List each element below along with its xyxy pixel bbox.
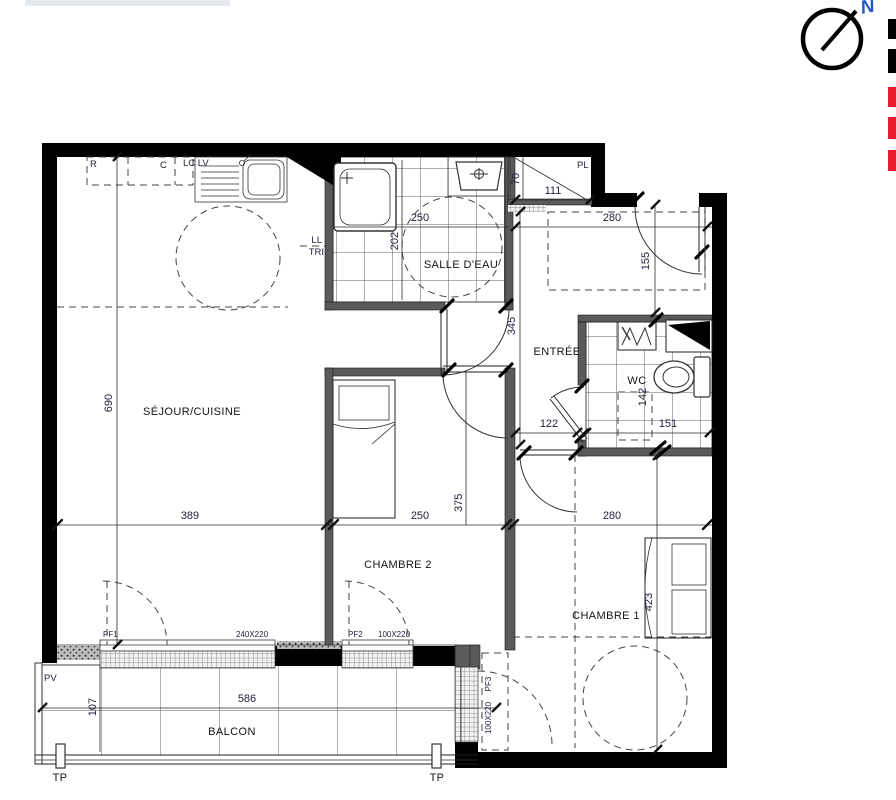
dim-wc-d: 142 bbox=[637, 388, 649, 406]
sejour-label: SÉJOUR/CUISINE bbox=[143, 405, 241, 418]
pl-label: PL bbox=[577, 160, 589, 171]
chambre2-door bbox=[443, 366, 508, 438]
shower-tray bbox=[334, 163, 396, 231]
legend-squares bbox=[888, 19, 896, 171]
balcony-west-rail bbox=[35, 663, 42, 764]
legend-square-3 bbox=[888, 87, 896, 107]
compass: N bbox=[803, 0, 878, 68]
tp-post-right bbox=[432, 744, 441, 768]
wc-label: WC bbox=[627, 375, 646, 387]
wc-south-wall bbox=[578, 448, 712, 456]
ll-label: LL bbox=[311, 235, 322, 246]
dim-sde-d: 202 bbox=[389, 232, 401, 250]
sink-bowl-inner bbox=[248, 164, 280, 195]
wall-east bbox=[712, 193, 727, 768]
pf1-hatch bbox=[100, 651, 275, 668]
dim-balcon-w: 586 bbox=[238, 693, 256, 705]
balcony-tiled-floor bbox=[42, 665, 458, 755]
dim-sejour-w: 389 bbox=[181, 510, 199, 522]
bed1-blanket-curve bbox=[645, 538, 652, 638]
pf3-hatch bbox=[455, 667, 478, 742]
dim-chambre1-h: 423 bbox=[643, 593, 655, 611]
cooker-label: C bbox=[160, 160, 167, 171]
compass-needle bbox=[822, 11, 856, 50]
north-label: N bbox=[859, 0, 878, 19]
wall-south-seg2 bbox=[413, 646, 458, 666]
entree-closet-dashed bbox=[548, 212, 705, 290]
chambre1-label: CHAMBRE 1 bbox=[572, 610, 640, 622]
window-pf3: PF3 100X220 bbox=[455, 653, 508, 750]
dim-pl-w: 111 bbox=[545, 185, 562, 197]
entree-label: ENTRÉE bbox=[533, 345, 580, 358]
tp-post-left bbox=[56, 744, 65, 768]
pf3-size: 100X220 bbox=[484, 701, 493, 734]
pv-label: PV bbox=[44, 673, 57, 684]
wall-south-east bbox=[455, 752, 727, 768]
table-dashed-circle bbox=[176, 206, 280, 310]
dim-chambre1-w: 280 bbox=[603, 510, 621, 522]
room-labels: SÉJOUR/CUISINE ENTRÉE CHAMBRE 2 CHAMBRE … bbox=[143, 345, 640, 622]
dim-aux-375: 375 bbox=[453, 494, 465, 512]
tp-right-label: TP bbox=[430, 772, 445, 784]
legend-square-2 bbox=[888, 49, 896, 73]
toilet-bowl-inner bbox=[663, 367, 689, 387]
bed2-blanket-line bbox=[333, 422, 395, 429]
window-pf2: PF2 100X220 bbox=[342, 630, 413, 668]
pf2-hatch bbox=[342, 651, 413, 668]
lclv-label: LC LV bbox=[183, 158, 209, 169]
pf1-size: 240X220 bbox=[236, 630, 269, 639]
dim-hall-h: 345 bbox=[506, 317, 518, 335]
floor-plan-drawing: PL R C LC LV LL TRI bbox=[0, 0, 896, 800]
pf3-label: PF3 bbox=[484, 676, 493, 691]
bed1-pillow-top bbox=[672, 544, 706, 585]
bed-chambre2 bbox=[333, 380, 395, 518]
toilet-tank bbox=[694, 357, 710, 397]
kitchen-units-dashed bbox=[87, 157, 193, 185]
dim-balcon-d: 107 bbox=[87, 698, 99, 716]
pf2-label: PF2 bbox=[348, 630, 363, 639]
ch2-west-wall bbox=[325, 368, 333, 645]
bed1-pillow-bottom bbox=[672, 590, 706, 634]
cropped-text-artifact bbox=[25, 0, 230, 6]
pf2-frame bbox=[342, 640, 413, 651]
dim-pl-d: 70 bbox=[510, 173, 522, 185]
tp-left-label: TP bbox=[53, 772, 68, 784]
dim-chambre2-w: 250 bbox=[411, 510, 429, 522]
tri-label: TRI bbox=[309, 247, 324, 258]
sink-drainer bbox=[201, 166, 239, 196]
pl-sill-hatch bbox=[508, 205, 546, 212]
ch1-west-stub bbox=[470, 645, 480, 669]
wall-north bbox=[42, 143, 591, 157]
chambre1-turning-circle bbox=[583, 646, 687, 750]
sde-south-wall bbox=[325, 302, 445, 310]
chambre2-label: CHAMBRE 2 bbox=[364, 559, 432, 571]
bed2-pillow bbox=[339, 386, 389, 420]
dim-sde-w: 250 bbox=[411, 212, 429, 224]
dim-sejour-h: 690 bbox=[103, 394, 115, 412]
legend-square-1 bbox=[888, 19, 896, 39]
bed1-frame bbox=[645, 538, 711, 638]
floor-plan-page: PL R C LC LV LL TRI bbox=[0, 0, 896, 800]
bed-chambre1 bbox=[645, 538, 711, 638]
bed2-frame bbox=[333, 380, 395, 518]
fridge-label: R bbox=[90, 159, 97, 170]
legend-square-4 bbox=[888, 117, 896, 139]
kitchen: R C LC LV LL TRI bbox=[57, 154, 341, 310]
wc-door bbox=[550, 387, 587, 442]
salle-deau-label: SALLE D'EAU bbox=[424, 259, 498, 271]
dim-right-155: 155 bbox=[640, 252, 652, 270]
salle-deau-door bbox=[441, 309, 509, 375]
ch2-north-wall bbox=[325, 368, 445, 376]
balcon-label: BALCON bbox=[208, 726, 256, 738]
dim-hall-122: 122 bbox=[540, 418, 558, 430]
pf1-label: PF1 bbox=[103, 630, 118, 639]
dim-hall-w: 280 bbox=[603, 212, 621, 224]
wall-west bbox=[42, 143, 57, 663]
dim-wc-w: 151 bbox=[659, 418, 677, 430]
wall-insulated-seg1 bbox=[57, 646, 100, 660]
window-pf1: PF1 240X220 bbox=[100, 630, 275, 668]
pf2-size: 100X220 bbox=[378, 630, 411, 639]
legend-square-5 bbox=[888, 150, 896, 171]
pf3-dashed-box bbox=[482, 653, 508, 750]
ch2-east-wall bbox=[505, 368, 515, 650]
pf1-frame bbox=[100, 640, 275, 651]
